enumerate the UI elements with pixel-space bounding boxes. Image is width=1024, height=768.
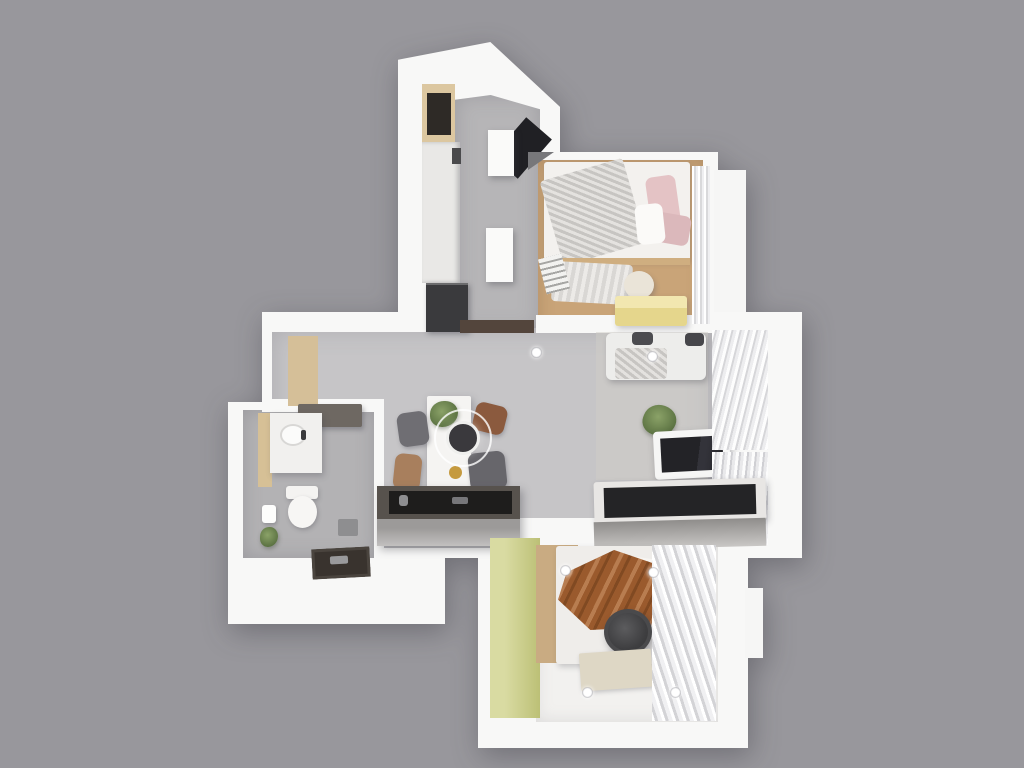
counter-item-round bbox=[399, 495, 408, 506]
bedroom1-side-step bbox=[714, 170, 746, 335]
kitchen-island-lower bbox=[486, 228, 513, 282]
bedroom2-rug bbox=[579, 649, 653, 692]
shower-tray-fitting bbox=[330, 556, 348, 565]
living-curtain-upper bbox=[712, 330, 768, 450]
bedroom2-curtain bbox=[652, 545, 716, 721]
kitchen-threshold bbox=[460, 320, 534, 333]
ceiling-light-bedroom2-4 bbox=[670, 687, 681, 698]
bedroom1-curtain bbox=[692, 166, 710, 324]
toilet-paper-holder bbox=[262, 505, 276, 523]
bed1-pillow-white bbox=[634, 203, 666, 246]
pendant-lamp bbox=[446, 421, 480, 455]
sofa-cushion-dark-left bbox=[632, 332, 653, 345]
dining-chair-nw bbox=[396, 410, 430, 448]
vanity-faucet bbox=[301, 430, 306, 440]
ceiling-light-living-1 bbox=[531, 347, 542, 358]
dining-gold-dish bbox=[449, 466, 462, 479]
floorplan-canvas bbox=[0, 0, 1024, 768]
ceiling-light-bedroom2-1 bbox=[560, 565, 571, 576]
wardrobe-rail-recess bbox=[604, 484, 757, 518]
bedroom2-green-wall bbox=[490, 538, 540, 718]
entry-wood-panel bbox=[288, 336, 318, 406]
bedroom1-pouf bbox=[624, 271, 654, 299]
kitchen-shelf-rack bbox=[427, 93, 451, 135]
ceiling-light-bedroom2-3 bbox=[582, 687, 593, 698]
floorplan bbox=[0, 0, 1024, 768]
ceiling-light-living-2 bbox=[647, 351, 658, 362]
bedroom2-side-step bbox=[745, 588, 763, 658]
kitchen-cabinet-handle bbox=[452, 148, 461, 164]
sofa-knit-blanket bbox=[615, 348, 667, 379]
counter-item-tray bbox=[452, 497, 468, 504]
ceiling-light-bedroom2-2 bbox=[648, 567, 659, 578]
shower-mixer bbox=[338, 519, 358, 536]
toilet-bowl bbox=[288, 496, 317, 528]
bedroom1-bench bbox=[615, 296, 687, 326]
sofa-cushion-dark-right bbox=[685, 333, 704, 346]
kitchen-island-upper bbox=[488, 130, 514, 176]
